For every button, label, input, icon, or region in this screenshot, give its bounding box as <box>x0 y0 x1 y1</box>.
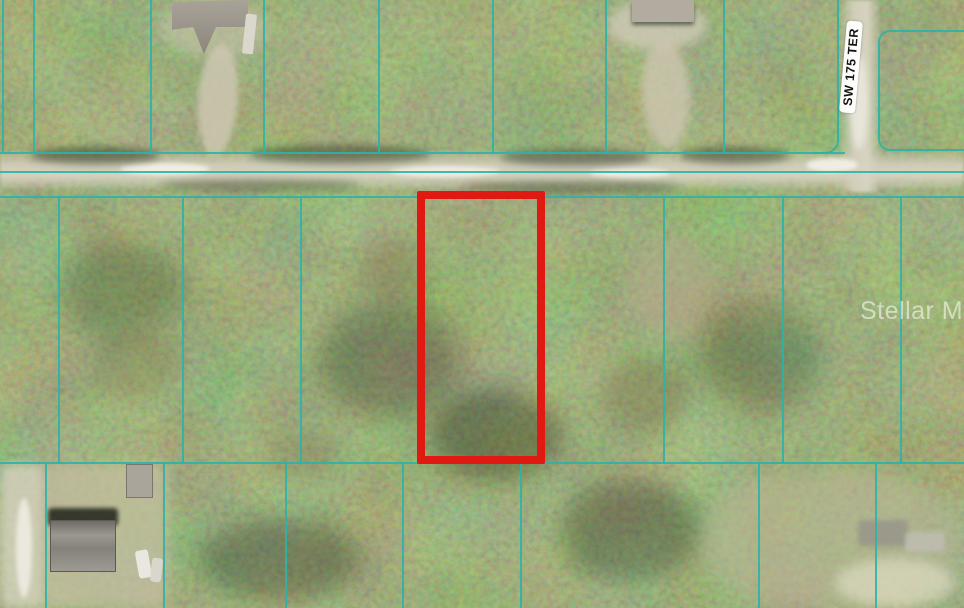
parcel-boundary-line <box>492 0 494 153</box>
parcel-boundary-line <box>402 463 404 608</box>
parcel-boundary-line <box>150 0 152 153</box>
parcel-boundary-line <box>875 463 877 608</box>
highlighted-parcel-outline <box>417 191 545 464</box>
parcel-boundary-line <box>33 0 35 153</box>
parcel-boundary-line <box>723 0 725 153</box>
parcel-boundary-line <box>58 197 60 463</box>
parcel-boundary-line <box>837 0 839 142</box>
aerial-map: SW 175 TER Stellar MLS <box>0 0 964 608</box>
parcel-boundary-bracket <box>878 30 964 151</box>
parcel-boundary-line <box>0 171 964 173</box>
parcel-boundary-line <box>0 152 845 154</box>
parcel-boundary-line <box>182 197 184 463</box>
parcel-boundary-line <box>285 463 287 608</box>
parcel-boundary-line <box>782 197 784 463</box>
parcel-boundary-line <box>163 463 165 608</box>
mls-watermark: Stellar MLS <box>860 297 964 326</box>
parcel-boundary-line <box>2 0 4 153</box>
parcel-boundary-line <box>900 197 902 463</box>
parcel-boundary-line <box>758 463 760 608</box>
parcel-boundary-line <box>663 197 665 463</box>
parcel-boundary-line <box>45 463 47 608</box>
parcel-boundary-line <box>520 463 522 608</box>
parcel-boundary-corner <box>812 108 839 154</box>
parcel-boundary-line <box>300 197 302 463</box>
parcel-boundary-line <box>378 0 380 153</box>
parcel-boundary-line <box>605 0 607 153</box>
parcel-boundary-line <box>263 0 265 153</box>
